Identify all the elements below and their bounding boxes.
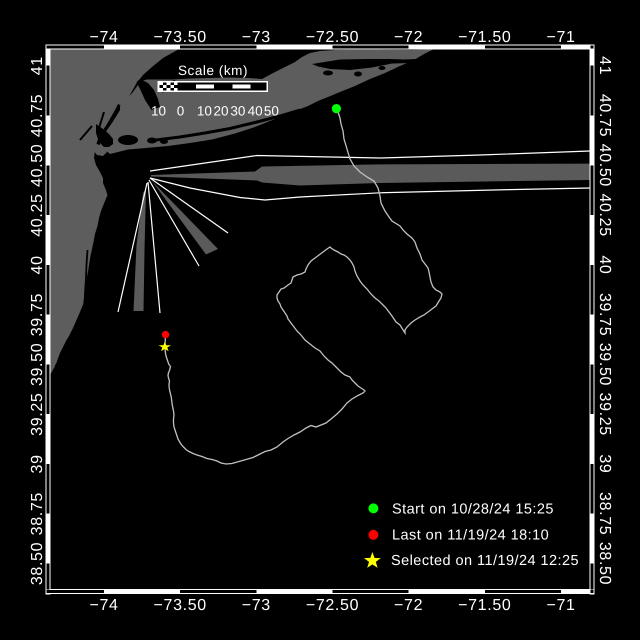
svg-text:41: 41 [29, 56, 46, 75]
svg-text:38.50: 38.50 [29, 542, 46, 585]
svg-text:−73: −73 [242, 29, 271, 46]
svg-text:39.25: 39.25 [596, 393, 613, 436]
svg-text:Last on 11/19/24 18:10: Last on 11/19/24 18:10 [392, 528, 549, 544]
svg-text:−74: −74 [89, 597, 118, 614]
svg-text:38.50: 38.50 [596, 542, 613, 585]
svg-text:40: 40 [29, 255, 46, 274]
svg-text:50: 50 [264, 104, 279, 119]
svg-text:−73.50: −73.50 [154, 29, 207, 46]
svg-text:−72.50: −72.50 [306, 597, 359, 614]
svg-text:38.75: 38.75 [596, 492, 613, 535]
svg-text:39.75: 39.75 [29, 293, 46, 336]
svg-text:Start on 10/28/24 15:25: Start on 10/28/24 15:25 [392, 502, 554, 518]
svg-text:−71: −71 [546, 597, 575, 614]
svg-text:40.50: 40.50 [596, 144, 613, 187]
svg-text:−72: −72 [394, 597, 423, 614]
svg-text:30: 30 [230, 104, 245, 119]
svg-text:0: 0 [177, 104, 185, 119]
svg-text:41: 41 [596, 56, 613, 75]
svg-text:−71.50: −71.50 [458, 29, 511, 46]
svg-text:−71: −71 [546, 29, 575, 46]
svg-text:39.50: 39.50 [29, 343, 46, 386]
svg-text:39: 39 [596, 454, 613, 473]
svg-text:40: 40 [596, 255, 613, 274]
svg-text:40.25: 40.25 [29, 193, 46, 236]
svg-text:40.75: 40.75 [29, 94, 46, 137]
svg-text:39.50: 39.50 [596, 343, 613, 386]
svg-text:39.25: 39.25 [29, 393, 46, 436]
svg-text:20: 20 [213, 104, 228, 119]
svg-text:39: 39 [29, 454, 46, 473]
svg-text:40.75: 40.75 [596, 94, 613, 137]
svg-text:Selected on 11/19/24 12:25: Selected on 11/19/24 12:25 [391, 553, 579, 569]
svg-text:−71.50: −71.50 [458, 597, 511, 614]
svg-text:−73: −73 [242, 597, 271, 614]
svg-text:40.50: 40.50 [29, 144, 46, 187]
svg-text:40: 40 [248, 104, 263, 119]
svg-text:−74: −74 [89, 29, 118, 46]
svg-text:39.75: 39.75 [596, 293, 613, 336]
svg-text:−72: −72 [394, 29, 423, 46]
svg-text:−73.50: −73.50 [154, 597, 207, 614]
svg-text:10: 10 [197, 104, 212, 119]
svg-text:40.25: 40.25 [596, 193, 613, 236]
svg-text:−72.50: −72.50 [306, 29, 359, 46]
svg-text:Scale (km): Scale (km) [178, 63, 248, 78]
svg-text:10: 10 [151, 104, 166, 119]
svg-text:38.75: 38.75 [29, 492, 46, 535]
